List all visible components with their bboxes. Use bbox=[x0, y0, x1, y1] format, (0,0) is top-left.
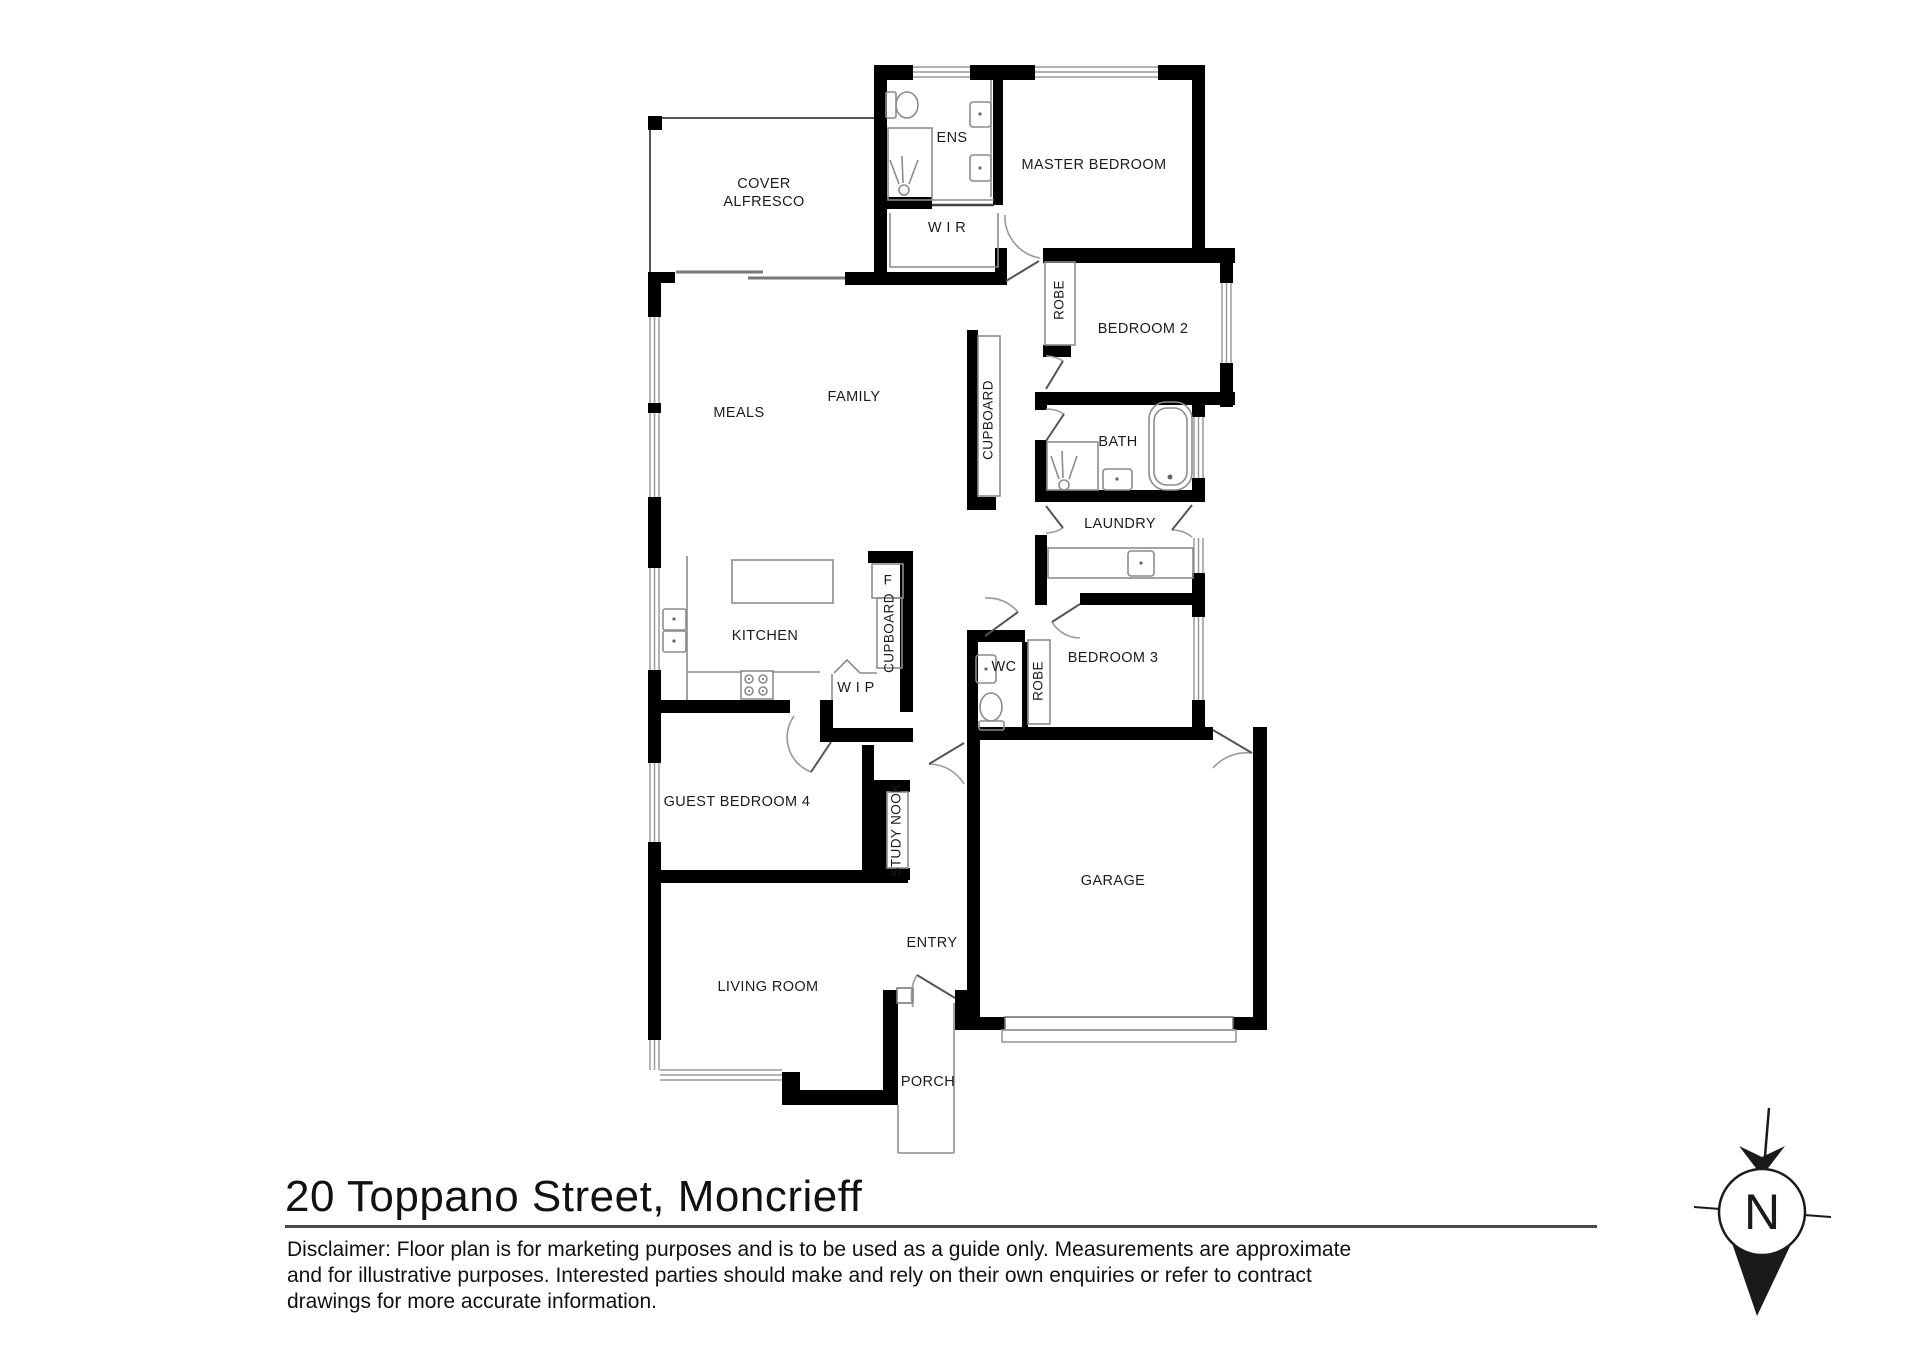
room-label-family: FAMILY bbox=[828, 388, 881, 406]
room-label-garage: GARAGE bbox=[1081, 872, 1145, 890]
north-label: N bbox=[1744, 1184, 1780, 1240]
room-label-cupboard-hall: CUPBOARD bbox=[981, 380, 998, 460]
room-label-bath: BATH bbox=[1098, 433, 1137, 451]
floorplan-page: N COVER ALFRESCO ENS MASTER BEDROOM W I … bbox=[0, 0, 1920, 1357]
room-label-wip: W I P bbox=[837, 679, 874, 697]
title-divider bbox=[285, 1225, 1597, 1228]
disclaimer-text: Disclaimer: Floor plan is for marketing … bbox=[287, 1237, 1351, 1315]
room-label-wc: WC bbox=[992, 658, 1017, 676]
room-label-porch: PORCH bbox=[901, 1073, 955, 1091]
room-label-guest-bedroom4: GUEST BEDROOM 4 bbox=[664, 793, 811, 811]
room-label-wir: W I R bbox=[928, 219, 966, 237]
room-label-robe-bedroom2: ROBE bbox=[1052, 280, 1069, 320]
room-label-bedroom2: BEDROOM 2 bbox=[1098, 320, 1189, 338]
room-label-living-room: LIVING ROOM bbox=[717, 978, 818, 996]
room-label-study-nook: STUDY NOOK bbox=[889, 783, 906, 876]
room-label-ens: ENS bbox=[936, 129, 967, 147]
room-label-kitchen: KITCHEN bbox=[732, 627, 798, 645]
alfresco-sliding-door bbox=[676, 272, 848, 278]
room-label-laundry: LAUNDRY bbox=[1084, 515, 1156, 533]
room-label-cupboard-kitchen: CUPBOARD bbox=[882, 593, 899, 673]
disclaimer-line-2: and for illustrative purposes. Intereste… bbox=[287, 1263, 1351, 1289]
room-label-master-bedroom: MASTER BEDROOM bbox=[1022, 156, 1167, 174]
disclaimer-line-1: Disclaimer: Floor plan is for marketing … bbox=[287, 1237, 1351, 1263]
room-label-cover-alfresco: COVER ALFRESCO bbox=[723, 175, 804, 211]
room-label-robe-bedroom3: ROBE bbox=[1031, 661, 1048, 701]
disclaimer-line-3: drawings for more accurate information. bbox=[287, 1289, 1351, 1315]
page-title: 20 Toppano Street, Moncrieff bbox=[285, 1172, 862, 1222]
room-label-fridge: F bbox=[884, 573, 893, 590]
room-label-entry: ENTRY bbox=[907, 934, 958, 952]
room-label-bedroom3: BEDROOM 3 bbox=[1068, 649, 1159, 667]
north-compass-icon: N bbox=[1694, 1108, 1831, 1316]
floorplan-drawing: N bbox=[0, 0, 1920, 1357]
room-label-meals: MEALS bbox=[713, 404, 764, 422]
